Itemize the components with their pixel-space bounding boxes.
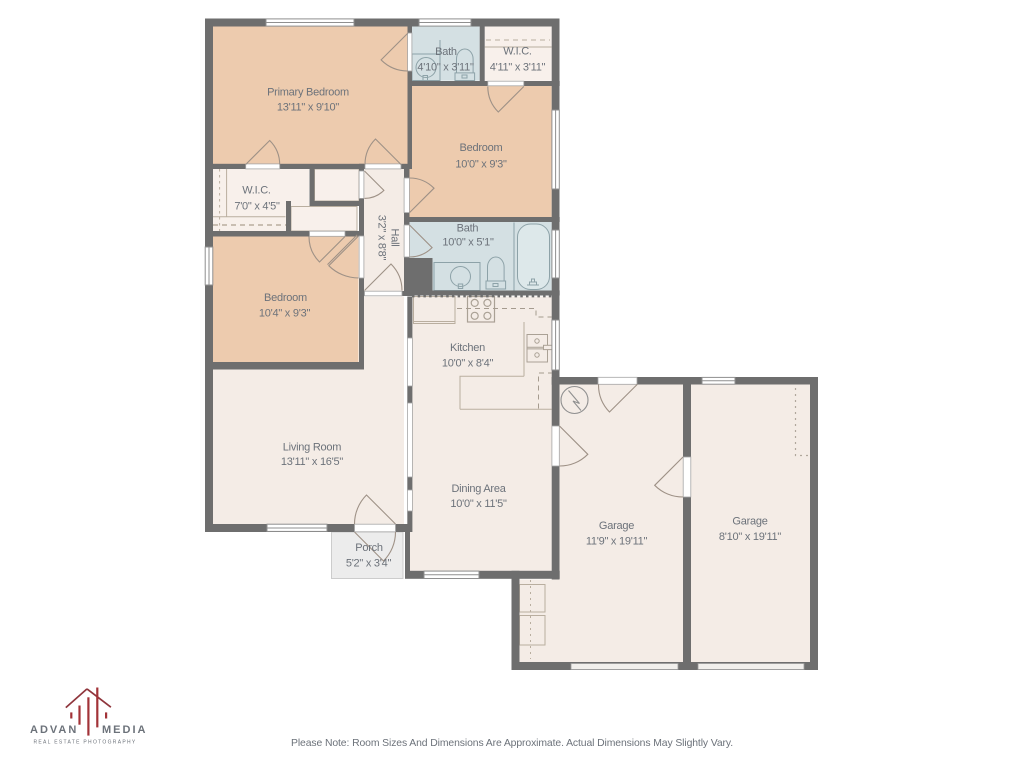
- svg-text:8'10" x 19'11": 8'10" x 19'11": [719, 531, 781, 543]
- svg-text:Bedroom: Bedroom: [264, 292, 307, 304]
- svg-text:Porch: Porch: [355, 542, 383, 554]
- svg-text:Dining Area: Dining Area: [451, 483, 506, 495]
- svg-text:10'0" x 5'1": 10'0" x 5'1": [442, 237, 494, 249]
- svg-text:10'0" x 8'4": 10'0" x 8'4": [442, 358, 494, 370]
- svg-text:13'11" x 9'10": 13'11" x 9'10": [277, 102, 339, 114]
- svg-text:4'11" x 3'11": 4'11" x 3'11": [490, 62, 546, 74]
- svg-text:W.I.C.: W.I.C.: [242, 185, 271, 197]
- svg-text:10'0" x 11'5": 10'0" x 11'5": [450, 498, 507, 510]
- svg-text:Bath: Bath: [435, 46, 457, 58]
- svg-text:REAL ESTATE PHOTOGRAPHY: REAL ESTATE PHOTOGRAPHY: [33, 740, 136, 746]
- svg-text:MEDIA: MEDIA: [102, 724, 147, 736]
- svg-text:7'0" x 4'5": 7'0" x 4'5": [234, 201, 280, 213]
- svg-text:Bath: Bath: [457, 223, 479, 235]
- svg-text:Please Note: Room Sizes And Di: Please Note: Room Sizes And Dimensions A…: [291, 738, 733, 749]
- svg-text:10'4" x 9'3": 10'4" x 9'3": [259, 308, 311, 320]
- svg-text:Garage: Garage: [732, 516, 767, 528]
- svg-text:10'0" x 9'3": 10'0" x 9'3": [455, 159, 507, 171]
- svg-text:Living Room: Living Room: [283, 442, 341, 454]
- svg-text:3'2" x 8'8": 3'2" x 8'8": [376, 215, 388, 261]
- svg-text:13'11" x 16'5": 13'11" x 16'5": [281, 456, 343, 468]
- svg-text:Primary Bedroom: Primary Bedroom: [267, 87, 349, 99]
- svg-text:Bedroom: Bedroom: [460, 142, 503, 154]
- svg-text:5'2" x 3'4": 5'2" x 3'4": [346, 558, 392, 570]
- svg-text:W.I.C.: W.I.C.: [503, 46, 532, 58]
- svg-text:Hall: Hall: [389, 229, 401, 247]
- svg-text:ADVAN: ADVAN: [30, 724, 78, 736]
- svg-text:Kitchen: Kitchen: [450, 342, 485, 354]
- svg-text:11'9" x 19'11": 11'9" x 19'11": [586, 536, 648, 548]
- svg-text:4'10" x 3'11": 4'10" x 3'11": [417, 62, 474, 74]
- svg-text:Garage: Garage: [599, 520, 634, 532]
